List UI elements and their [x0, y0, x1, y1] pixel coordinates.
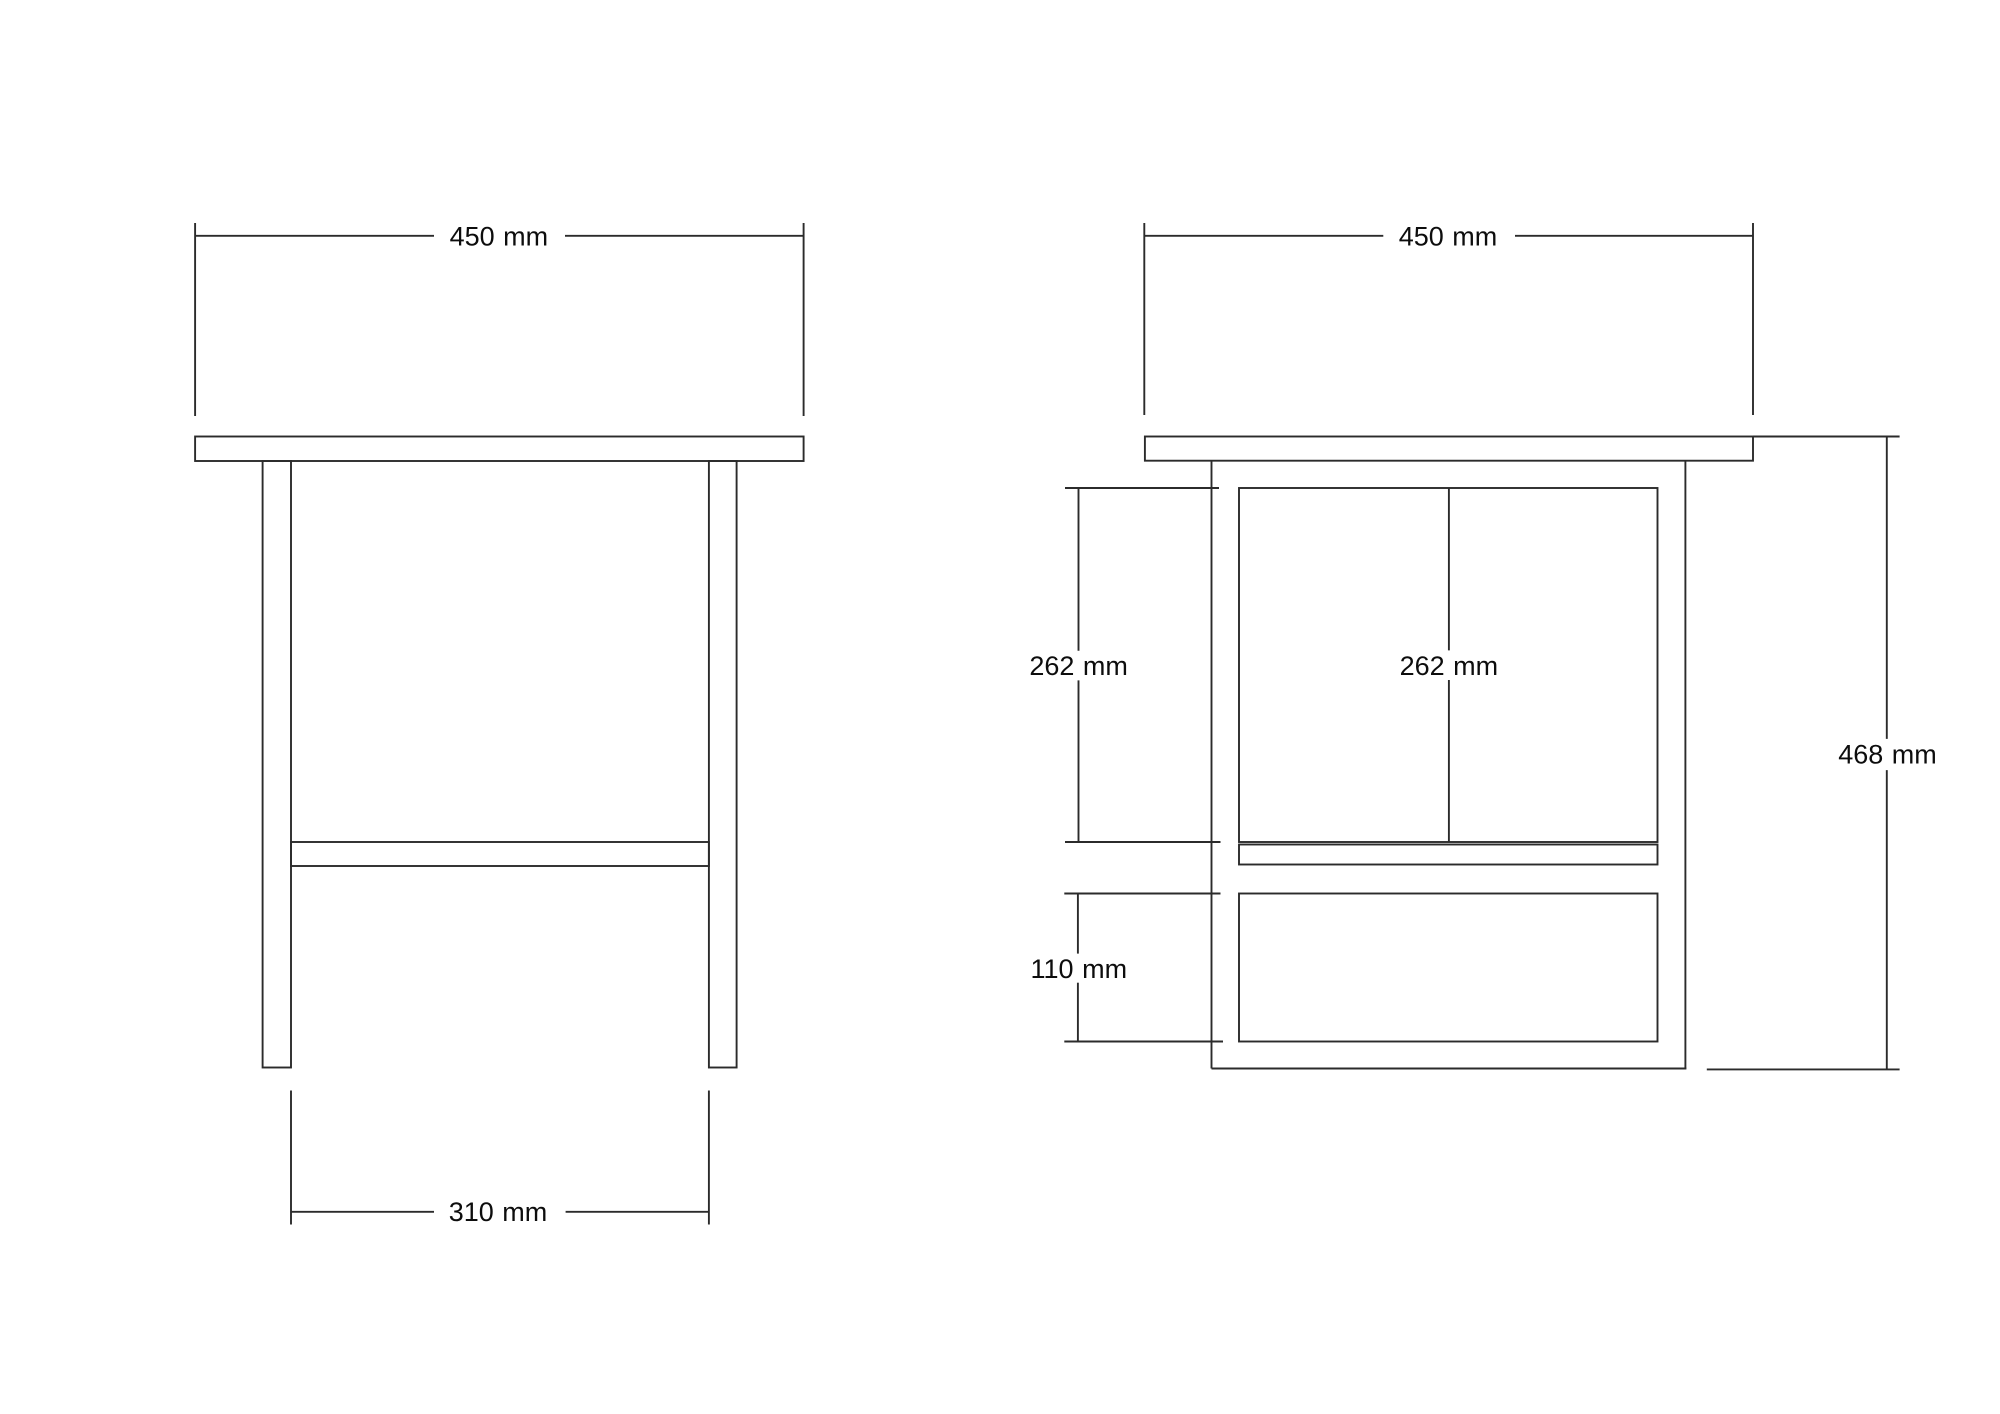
svg-text:110 mm: 110 mm — [1031, 954, 1128, 984]
svg-text:310 mm: 310 mm — [449, 1197, 548, 1227]
svg-text:262 mm: 262 mm — [1400, 651, 1499, 681]
svg-text:468 mm: 468 mm — [1838, 739, 1937, 769]
svg-text:262 mm: 262 mm — [1029, 651, 1128, 681]
svg-text:450 mm: 450 mm — [450, 221, 549, 251]
svg-text:450 mm: 450 mm — [1399, 221, 1498, 251]
